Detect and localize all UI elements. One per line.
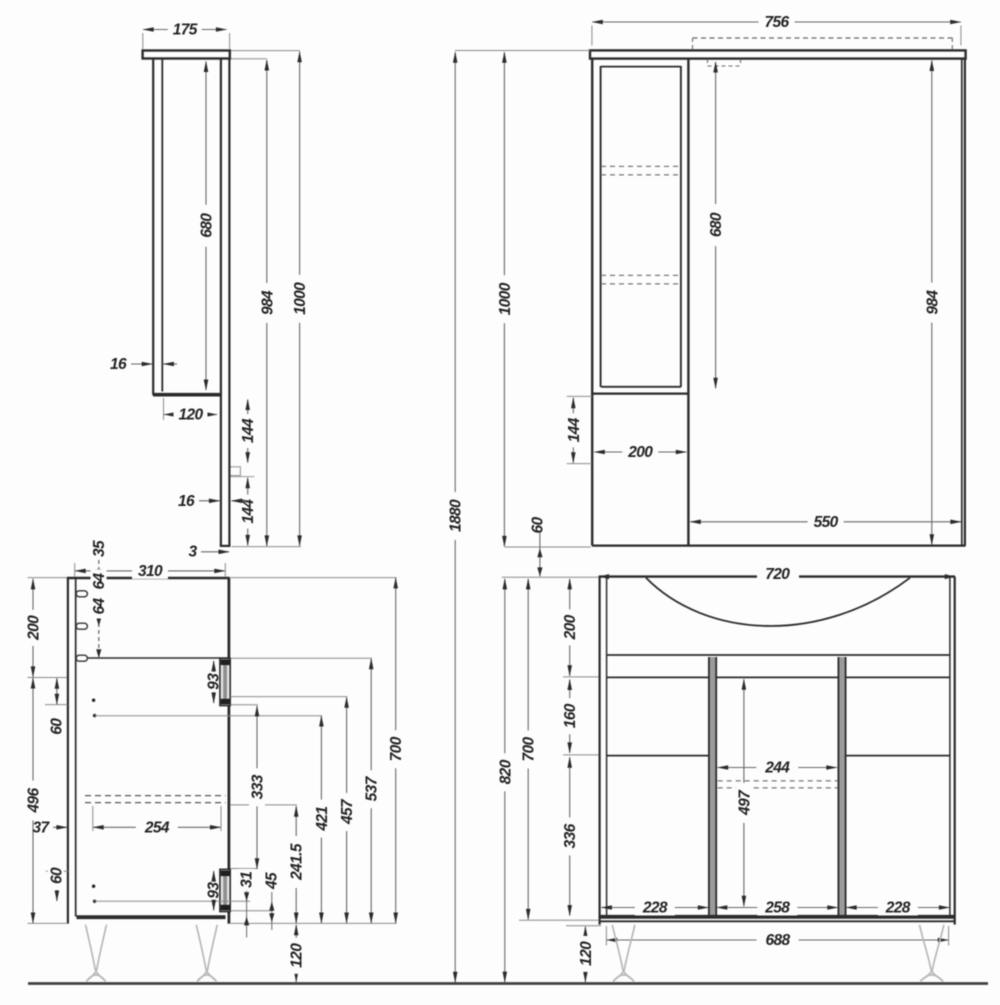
svg-text:244: 244 bbox=[764, 760, 790, 777]
svg-text:200: 200 bbox=[26, 615, 43, 641]
svg-text:3: 3 bbox=[188, 544, 197, 561]
svg-text:820: 820 bbox=[497, 759, 514, 784]
svg-text:228: 228 bbox=[642, 900, 668, 917]
svg-text:680: 680 bbox=[708, 212, 725, 237]
svg-text:496: 496 bbox=[26, 787, 43, 813]
svg-text:497: 497 bbox=[736, 789, 753, 816]
svg-text:160: 160 bbox=[562, 703, 579, 728]
svg-text:64: 64 bbox=[91, 573, 108, 590]
svg-text:333: 333 bbox=[250, 774, 267, 799]
svg-text:680: 680 bbox=[199, 213, 216, 238]
svg-text:984: 984 bbox=[924, 290, 941, 315]
svg-text:16: 16 bbox=[110, 356, 127, 373]
svg-text:120: 120 bbox=[578, 941, 595, 966]
svg-text:60: 60 bbox=[48, 718, 65, 735]
svg-text:60: 60 bbox=[529, 517, 546, 534]
svg-text:64: 64 bbox=[91, 598, 108, 615]
svg-text:200: 200 bbox=[627, 444, 653, 461]
svg-text:93: 93 bbox=[205, 882, 222, 899]
svg-text:93: 93 bbox=[205, 673, 222, 690]
svg-text:31: 31 bbox=[239, 872, 256, 888]
svg-text:120: 120 bbox=[178, 407, 203, 424]
svg-text:700: 700 bbox=[388, 736, 405, 761]
svg-text:120: 120 bbox=[289, 943, 306, 968]
svg-text:228: 228 bbox=[885, 900, 911, 917]
svg-text:688: 688 bbox=[766, 932, 791, 949]
svg-text:175: 175 bbox=[173, 22, 198, 39]
svg-text:60: 60 bbox=[48, 867, 65, 884]
svg-text:1000: 1000 bbox=[497, 282, 514, 315]
svg-text:144: 144 bbox=[566, 417, 583, 442]
svg-text:1880: 1880 bbox=[448, 499, 465, 532]
svg-text:336: 336 bbox=[562, 823, 579, 848]
svg-text:45: 45 bbox=[264, 872, 281, 890]
svg-text:984: 984 bbox=[259, 290, 276, 315]
svg-text:144: 144 bbox=[240, 499, 257, 524]
svg-text:37: 37 bbox=[32, 819, 50, 836]
svg-text:16: 16 bbox=[178, 493, 195, 510]
svg-text:421: 421 bbox=[314, 807, 331, 832]
svg-text:756: 756 bbox=[764, 14, 789, 31]
svg-text:144: 144 bbox=[240, 418, 257, 443]
svg-text:1000: 1000 bbox=[292, 282, 309, 315]
svg-text:310: 310 bbox=[138, 563, 163, 580]
svg-text:720: 720 bbox=[765, 566, 790, 583]
svg-text:254: 254 bbox=[144, 819, 170, 836]
svg-text:200: 200 bbox=[562, 614, 579, 640]
svg-text:241.5: 241.5 bbox=[289, 843, 306, 881]
svg-text:550: 550 bbox=[814, 514, 839, 531]
svg-text:35: 35 bbox=[91, 540, 108, 557]
svg-text:258: 258 bbox=[764, 900, 790, 917]
svg-text:700: 700 bbox=[521, 736, 538, 761]
svg-text:537: 537 bbox=[364, 775, 381, 801]
svg-text:457: 457 bbox=[339, 798, 356, 825]
